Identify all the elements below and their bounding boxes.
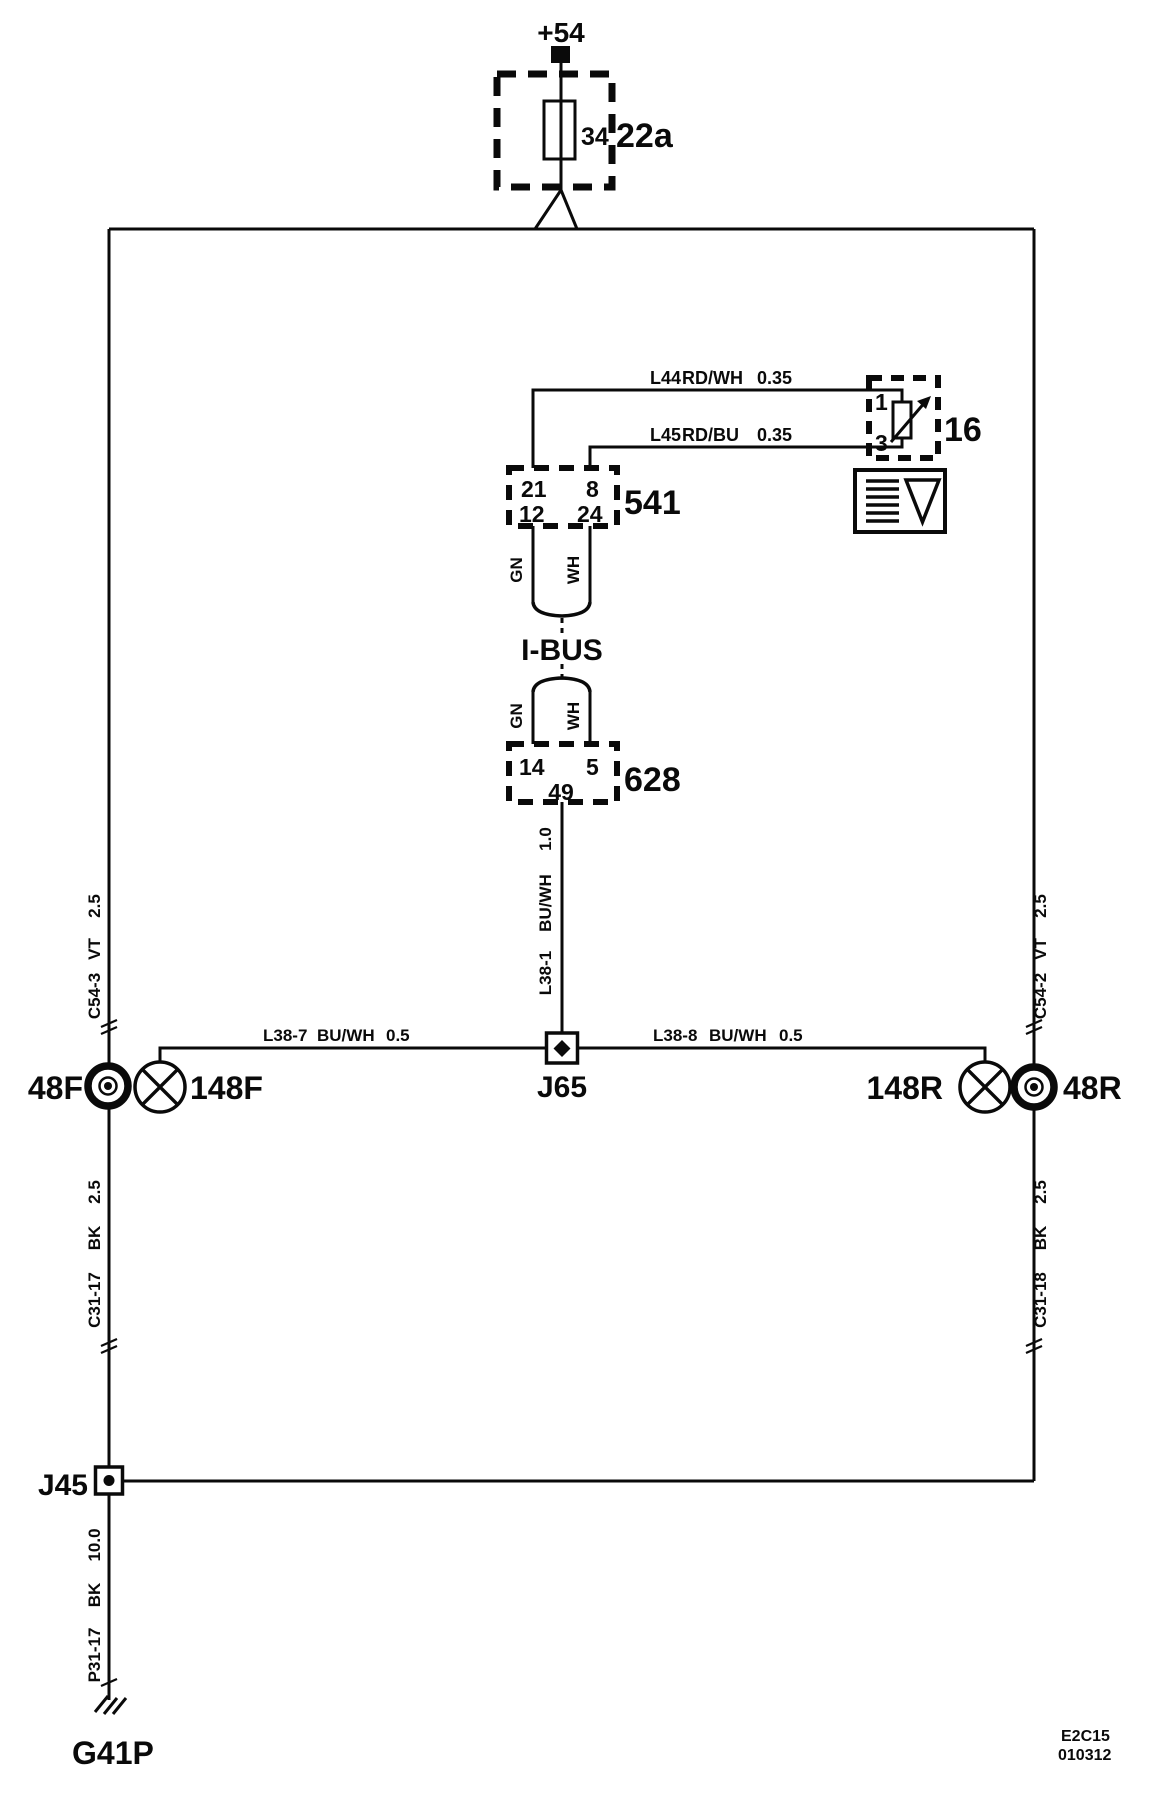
rheostat-pin-1-label: 1 bbox=[875, 389, 888, 415]
wire-l38-1-id-label: L38-1 bbox=[536, 951, 555, 995]
junction-j45-label: J45 bbox=[38, 1469, 88, 1502]
battery-terminal-label: +54 bbox=[537, 17, 585, 48]
ibus-gn-upper-label: GN bbox=[507, 557, 526, 583]
junction-j45 bbox=[96, 1467, 123, 1494]
rheostat-component-label: 16 bbox=[944, 411, 982, 449]
wire-c54-3-color-label: VT bbox=[85, 938, 104, 960]
module-628-component-label: 628 bbox=[624, 761, 681, 799]
wiring-diagram-page: +54 34 22a L44 RD/WH 0.35 L45 RD/BU 0.35… bbox=[0, 0, 1152, 1796]
main-bus-wires bbox=[109, 229, 1034, 1700]
wire-l38-7-color-label: BU/WH bbox=[317, 1026, 375, 1045]
wire-l45 bbox=[590, 438, 902, 468]
wire-c54-2-id-label: C54-2 bbox=[1031, 973, 1050, 1019]
module-628-pin-49-label: 49 bbox=[548, 779, 574, 805]
ground-label: G41P bbox=[72, 1735, 154, 1771]
junction-node-icon bbox=[104, 1475, 115, 1486]
wire-c31-18-size-label: 2.5 bbox=[1031, 1180, 1050, 1204]
fuse-number-label: 34 bbox=[581, 123, 609, 151]
socket-48r bbox=[1014, 1067, 1054, 1107]
lamp-148f-icon bbox=[135, 1062, 185, 1112]
wire-p31-17-color-label: BK bbox=[85, 1582, 104, 1607]
wire-c54-2-size-label: 2.5 bbox=[1031, 894, 1050, 918]
fuse-box-component-label: 22a bbox=[616, 117, 674, 155]
wire-l38-8-size-label: 0.5 bbox=[779, 1026, 803, 1045]
wire-l44-size-label: 0.35 bbox=[757, 368, 792, 388]
ibus-wh-lower-label: WH bbox=[564, 702, 583, 730]
ibus-wh-upper-label: WH bbox=[564, 556, 583, 584]
wire-c31-18-id-label: C31-18 bbox=[1031, 1272, 1050, 1328]
ibus-label: I-BUS bbox=[521, 634, 603, 667]
wire-l38-8-color-label: BU/WH bbox=[709, 1026, 767, 1045]
module-541-pin-21-label: 21 bbox=[521, 476, 547, 502]
module-541-pin-8-label: 8 bbox=[586, 476, 599, 502]
wire-c31-17-color-label: BK bbox=[85, 1225, 104, 1250]
wire-l38-7-size-label: 0.5 bbox=[386, 1026, 410, 1045]
wire-l45-color-label: RD/BU bbox=[682, 425, 739, 445]
lamp-148r-label: 148R bbox=[867, 1070, 944, 1106]
junction-j65 bbox=[547, 1033, 578, 1063]
dimmer-symbol-icon bbox=[855, 470, 945, 532]
wire-l38-8-id-label: L38-8 bbox=[653, 1026, 697, 1045]
illumination-lines-icon bbox=[866, 481, 899, 521]
module-541-pin-24-label: 24 bbox=[577, 501, 603, 527]
junction-j65-label: J65 bbox=[537, 1071, 587, 1104]
socket-48f bbox=[88, 1066, 128, 1106]
footer-date-ref: 010312 bbox=[1058, 1747, 1111, 1764]
wire-l44-color-label: RD/WH bbox=[682, 368, 743, 388]
module-541-pin-12-label: 12 bbox=[519, 501, 545, 527]
socket-48f-label: 48F bbox=[28, 1070, 83, 1106]
wire-l38-1-size-label: 1.0 bbox=[536, 827, 555, 851]
connector-tick-marks bbox=[101, 1020, 1042, 1686]
rheostat-pin-3-label: 3 bbox=[875, 430, 888, 456]
footer-sheet-ref: E2C15 bbox=[1061, 1728, 1110, 1745]
module-628-pin-5-label: 5 bbox=[586, 754, 599, 780]
triangle-down-icon bbox=[906, 480, 939, 522]
wire-p31-17-id-label: P31-17 bbox=[85, 1628, 104, 1683]
lamp-148f-label: 148F bbox=[190, 1070, 263, 1106]
lamp-148r-icon bbox=[960, 1062, 1010, 1112]
wire-l44-id-label: L44 bbox=[650, 368, 681, 388]
module-628-pin-14-label: 14 bbox=[519, 754, 545, 780]
ibus-gn-lower-label: GN bbox=[507, 703, 526, 729]
wire-c54-3-id-label: C54-3 bbox=[85, 973, 104, 1019]
wire-p31-17-size-label: 10.0 bbox=[85, 1528, 104, 1561]
wire-l38-7-id-label: L38-7 bbox=[263, 1026, 307, 1045]
wiring-diagram-canvas: +54 34 22a L44 RD/WH 0.35 L45 RD/BU 0.35… bbox=[0, 0, 1152, 1796]
wire-l45-id-label: L45 bbox=[650, 425, 681, 445]
wire-c31-17-id-label: C31-17 bbox=[85, 1272, 104, 1328]
module-541-component-label: 541 bbox=[624, 484, 681, 522]
wire-c54-2-color-label: VT bbox=[1031, 938, 1050, 960]
wire-l38-1-color-label: BU/WH bbox=[536, 874, 555, 932]
wire-c31-18-color-label: BK bbox=[1031, 1225, 1050, 1250]
wire-c54-3-size-label: 2.5 bbox=[85, 894, 104, 918]
wire-c31-17-size-label: 2.5 bbox=[85, 1180, 104, 1204]
wire-l45-size-label: 0.35 bbox=[757, 425, 792, 445]
socket-48r-label: 48R bbox=[1063, 1070, 1122, 1106]
